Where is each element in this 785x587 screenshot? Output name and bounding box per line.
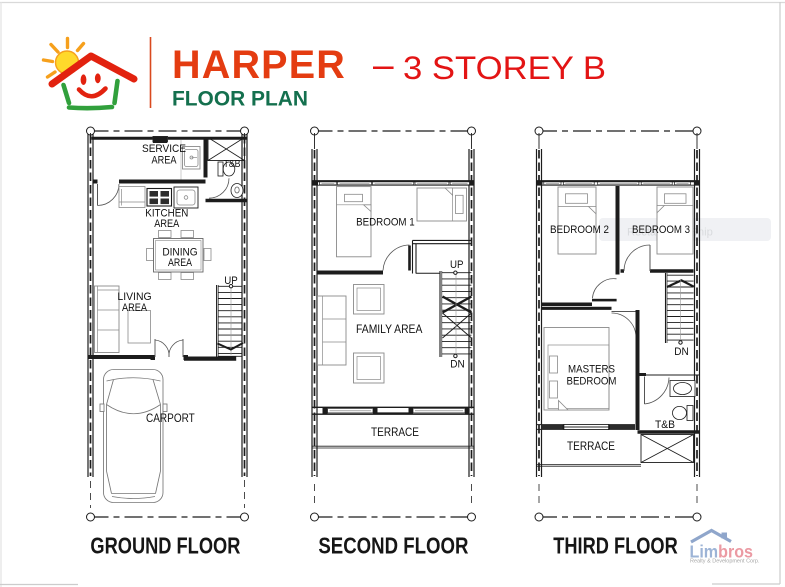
svg-text:HARPER: HARPER [172, 43, 346, 87]
svg-text:TERRACE: TERRACE [567, 441, 615, 453]
svg-text:UP: UP [450, 259, 464, 271]
svg-text:TERRACE: TERRACE [371, 427, 419, 439]
svg-text:–: – [373, 44, 394, 85]
svg-text:AREA: AREA [168, 257, 193, 269]
svg-text:GROUND FLOOR: GROUND FLOOR [90, 533, 240, 559]
svg-text:AREA: AREA [122, 302, 148, 314]
svg-text:FLOOR PLAN: FLOOR PLAN [172, 88, 308, 111]
svg-text:THIRD FLOOR: THIRD FLOOR [553, 533, 678, 559]
svg-text:AREA: AREA [152, 155, 178, 167]
svg-text:T&B: T&B [655, 419, 675, 431]
svg-text:BEDROOM: BEDROOM [567, 376, 617, 388]
svg-text:UP: UP [224, 275, 238, 287]
svg-text:BEDROOM 3: BEDROOM 3 [632, 224, 690, 236]
svg-text:DN: DN [674, 346, 689, 358]
svg-text:T&B: T&B [224, 159, 241, 170]
svg-text:BEDROOM 2: BEDROOM 2 [550, 224, 609, 236]
svg-text:Realty & Development Corp.: Realty & Development Corp. [690, 558, 760, 564]
svg-text:3 STOREY B: 3 STOREY B [403, 50, 606, 86]
svg-text:SECOND FLOOR: SECOND FLOOR [318, 533, 468, 559]
svg-text:DN: DN [450, 359, 465, 371]
svg-text:SERVICE: SERVICE [142, 143, 186, 155]
svg-text:AREA: AREA [154, 218, 180, 230]
svg-text:BEDROOM 1: BEDROOM 1 [356, 217, 415, 229]
svg-text:MASTERS: MASTERS [568, 364, 615, 376]
svg-text:CARPORT: CARPORT [146, 413, 195, 425]
svg-text:FAMILY AREA: FAMILY AREA [356, 324, 423, 336]
